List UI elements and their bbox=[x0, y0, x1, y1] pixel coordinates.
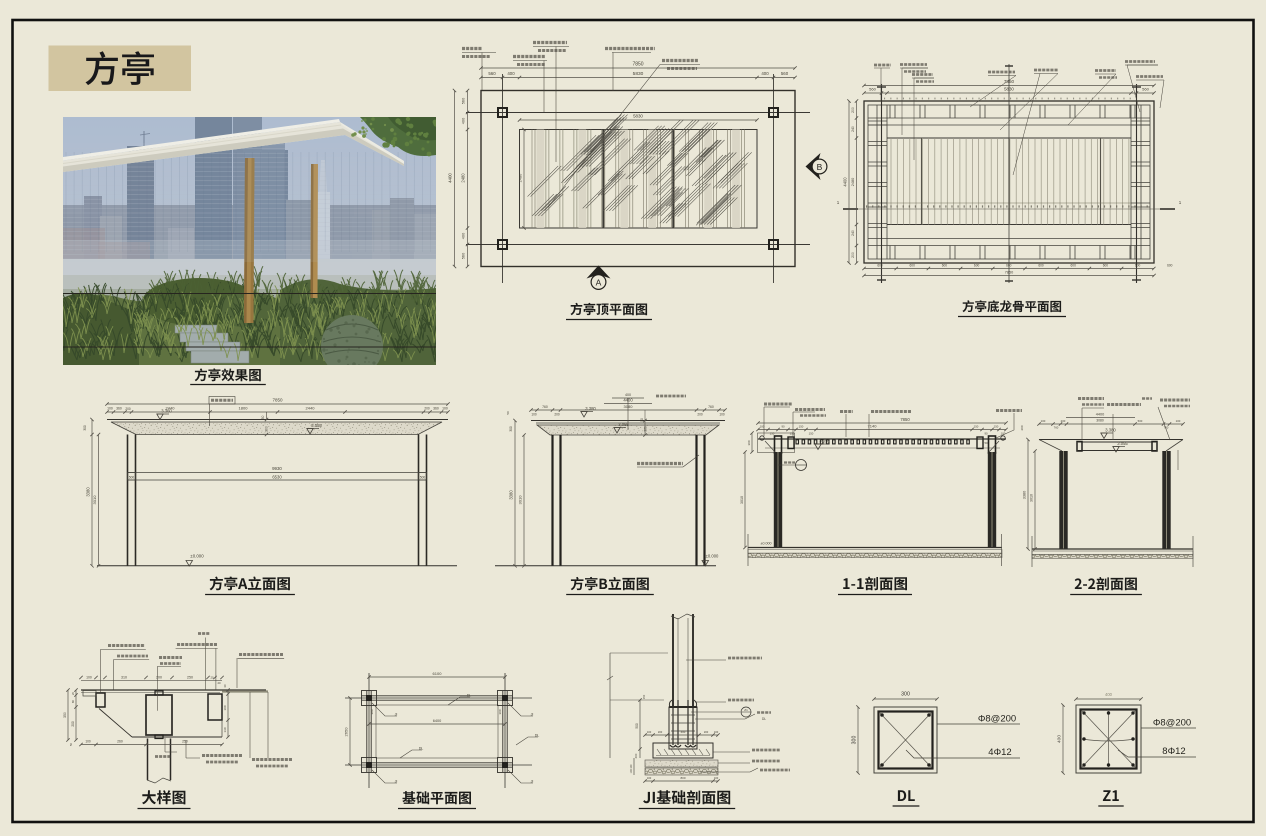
svg-text:300: 300 bbox=[265, 426, 269, 432]
svg-text:200: 200 bbox=[851, 107, 855, 113]
svg-text:200: 200 bbox=[424, 407, 430, 411]
svg-text:200: 200 bbox=[554, 413, 560, 417]
svg-text:100: 100 bbox=[719, 413, 725, 417]
svg-text:3010: 3010 bbox=[1030, 494, 1034, 502]
svg-text:100: 100 bbox=[223, 705, 227, 710]
svg-text:6530: 6530 bbox=[272, 474, 282, 479]
svg-text:3380: 3380 bbox=[1023, 491, 1027, 499]
svg-text:600: 600 bbox=[942, 264, 948, 268]
svg-text:1800: 1800 bbox=[239, 406, 249, 411]
svg-text:20: 20 bbox=[210, 675, 214, 679]
svg-text:200: 200 bbox=[156, 675, 162, 679]
svg-text:100: 100 bbox=[86, 675, 92, 679]
svg-text:400: 400 bbox=[625, 393, 631, 397]
svg-text:100: 100 bbox=[107, 407, 113, 411]
svg-text:200: 200 bbox=[704, 730, 709, 734]
svg-text:3380: 3380 bbox=[509, 490, 514, 500]
svg-text:100: 100 bbox=[714, 776, 719, 780]
svg-text:3.055: 3.055 bbox=[819, 439, 830, 444]
svg-text:50: 50 bbox=[69, 743, 73, 747]
svg-text:300: 300 bbox=[83, 425, 87, 431]
svg-text:90: 90 bbox=[781, 425, 785, 429]
svg-text:400: 400 bbox=[461, 117, 466, 124]
svg-text:±0.000: ±0.000 bbox=[190, 554, 204, 559]
svg-text:400: 400 bbox=[681, 730, 686, 734]
svg-text:560: 560 bbox=[488, 71, 496, 76]
svg-text:80: 80 bbox=[71, 700, 75, 704]
svg-text:400: 400 bbox=[1057, 735, 1063, 743]
svg-text:JI: JI bbox=[531, 713, 534, 717]
svg-text:7850: 7850 bbox=[272, 398, 283, 403]
svg-text:560: 560 bbox=[461, 97, 466, 104]
svg-text:300: 300 bbox=[852, 736, 858, 745]
svg-text:2480: 2480 bbox=[461, 173, 466, 183]
svg-text:DL: DL bbox=[467, 694, 472, 698]
svg-text:7850: 7850 bbox=[632, 62, 643, 68]
svg-text:50: 50 bbox=[261, 416, 265, 420]
svg-text:5830: 5830 bbox=[633, 114, 643, 119]
svg-text:DL: DL bbox=[762, 717, 766, 721]
svg-text:560: 560 bbox=[781, 71, 789, 76]
svg-text:JI: JI bbox=[395, 713, 398, 717]
svg-text:100: 100 bbox=[647, 730, 652, 734]
svg-text:300: 300 bbox=[509, 426, 513, 432]
svg-text:200: 200 bbox=[71, 721, 75, 727]
svg-text:250: 250 bbox=[187, 675, 193, 679]
svg-text:760: 760 bbox=[708, 405, 714, 409]
svg-text:A: A bbox=[596, 278, 602, 288]
svg-text:2440: 2440 bbox=[306, 406, 316, 411]
svg-text:9930: 9930 bbox=[272, 466, 282, 471]
svg-text:3.380: 3.380 bbox=[585, 406, 596, 411]
svg-text:2480: 2480 bbox=[851, 178, 855, 186]
svg-text:Φ8@200: Φ8@200 bbox=[978, 714, 1016, 725]
svg-text:400: 400 bbox=[461, 232, 466, 239]
svg-text:50: 50 bbox=[984, 441, 988, 445]
svg-text:3.380: 3.380 bbox=[1105, 428, 1116, 433]
svg-text:360: 360 bbox=[116, 407, 122, 411]
svg-text:100: 100 bbox=[1176, 419, 1181, 423]
svg-text:100: 100 bbox=[531, 413, 537, 417]
svg-text:260: 260 bbox=[117, 740, 123, 744]
svg-text:150: 150 bbox=[642, 694, 646, 699]
svg-text:150: 150 bbox=[809, 432, 814, 436]
svg-text:30: 30 bbox=[223, 684, 227, 688]
svg-text:760: 760 bbox=[1054, 426, 1059, 430]
svg-text:300: 300 bbox=[747, 440, 751, 445]
svg-text:4400: 4400 bbox=[1096, 413, 1104, 417]
svg-text:Z1: Z1 bbox=[744, 708, 748, 712]
svg-text:760: 760 bbox=[542, 405, 548, 409]
svg-text:560: 560 bbox=[869, 87, 876, 92]
svg-text:300: 300 bbox=[498, 709, 502, 714]
svg-text:4Φ12: 4Φ12 bbox=[988, 747, 1011, 758]
svg-text:3010: 3010 bbox=[518, 495, 523, 505]
svg-text:7850: 7850 bbox=[900, 417, 910, 422]
svg-text:600: 600 bbox=[910, 264, 916, 268]
svg-text:50: 50 bbox=[506, 411, 510, 415]
svg-text:2650: 2650 bbox=[344, 727, 349, 737]
svg-text:±0.000: ±0.000 bbox=[706, 554, 719, 559]
svg-text:5830: 5830 bbox=[633, 71, 644, 77]
svg-text:6400: 6400 bbox=[433, 719, 441, 723]
svg-text:300: 300 bbox=[370, 709, 374, 714]
svg-text:500: 500 bbox=[1138, 419, 1143, 423]
svg-text:600: 600 bbox=[1135, 264, 1141, 268]
svg-text:JI: JI bbox=[531, 780, 534, 784]
svg-text:3.055: 3.055 bbox=[618, 422, 629, 427]
svg-text:3.055: 3.055 bbox=[311, 423, 322, 428]
svg-text:90: 90 bbox=[984, 432, 988, 436]
svg-text:200: 200 bbox=[658, 730, 663, 734]
svg-text:150: 150 bbox=[770, 432, 775, 436]
svg-text:250: 250 bbox=[182, 740, 188, 744]
svg-text:4400: 4400 bbox=[843, 177, 848, 187]
svg-text:300: 300 bbox=[901, 692, 910, 698]
svg-text:100: 100 bbox=[85, 740, 91, 744]
svg-text:DL: DL bbox=[535, 734, 540, 738]
svg-text:360: 360 bbox=[433, 407, 439, 411]
svg-text:350: 350 bbox=[63, 712, 67, 718]
svg-text:50: 50 bbox=[640, 418, 644, 422]
svg-text:8Φ12: 8Φ12 bbox=[1162, 746, 1185, 757]
svg-text:240: 240 bbox=[851, 126, 855, 132]
svg-text:Φ8@200: Φ8@200 bbox=[1153, 718, 1191, 729]
svg-text:560: 560 bbox=[461, 252, 466, 259]
svg-text:600: 600 bbox=[1103, 264, 1109, 268]
svg-text:6100: 6100 bbox=[433, 671, 443, 676]
svg-text:100: 100 bbox=[647, 776, 652, 780]
svg-text:4400: 4400 bbox=[448, 173, 453, 183]
svg-text:2480: 2480 bbox=[518, 173, 523, 182]
svg-text:JI: JI bbox=[395, 780, 398, 784]
svg-text:150: 150 bbox=[994, 425, 999, 429]
svg-text:800: 800 bbox=[680, 776, 685, 780]
svg-text:200: 200 bbox=[634, 753, 638, 758]
svg-text:3010: 3010 bbox=[740, 496, 744, 504]
svg-text:200: 200 bbox=[851, 252, 855, 258]
svg-text:200: 200 bbox=[125, 407, 131, 411]
svg-text:240: 240 bbox=[851, 230, 855, 236]
svg-text:200: 200 bbox=[697, 413, 703, 417]
svg-text:560: 560 bbox=[1142, 87, 1149, 92]
svg-text:3380: 3380 bbox=[86, 487, 91, 497]
svg-text:3010: 3010 bbox=[92, 495, 97, 505]
svg-text:600: 600 bbox=[974, 264, 980, 268]
svg-text:600: 600 bbox=[877, 264, 883, 268]
svg-text:20: 20 bbox=[217, 681, 221, 685]
svg-text:3080: 3080 bbox=[624, 404, 634, 409]
svg-text:500: 500 bbox=[420, 476, 426, 480]
svg-text:100: 100 bbox=[442, 407, 448, 411]
svg-text:200: 200 bbox=[1020, 425, 1024, 430]
svg-text:B: B bbox=[817, 162, 823, 172]
svg-text:400: 400 bbox=[761, 71, 769, 76]
svg-text:100: 100 bbox=[1041, 419, 1046, 423]
svg-text:150: 150 bbox=[790, 432, 795, 436]
svg-text:3080: 3080 bbox=[1096, 419, 1104, 423]
svg-text:400: 400 bbox=[507, 71, 515, 76]
svg-text:310: 310 bbox=[121, 675, 127, 679]
svg-text:100 100: 100 100 bbox=[630, 764, 633, 773]
svg-text:300: 300 bbox=[644, 426, 648, 432]
svg-text:500: 500 bbox=[635, 723, 639, 729]
svg-text:130: 130 bbox=[223, 727, 227, 732]
svg-text:150: 150 bbox=[974, 425, 979, 429]
svg-text:3.055: 3.055 bbox=[1117, 441, 1128, 446]
svg-text:DL: DL bbox=[419, 747, 424, 751]
svg-text:600: 600 bbox=[1071, 264, 1077, 268]
svg-text:600: 600 bbox=[1038, 264, 1044, 268]
svg-text:100: 100 bbox=[714, 730, 719, 734]
svg-text:4400: 4400 bbox=[623, 398, 633, 403]
svg-text:500: 500 bbox=[129, 476, 135, 480]
svg-text:±0.000: ±0.000 bbox=[761, 542, 772, 546]
svg-text:150: 150 bbox=[799, 425, 804, 429]
svg-text:200: 200 bbox=[1061, 419, 1066, 423]
svg-text:3.360: 3.360 bbox=[161, 409, 172, 414]
svg-text:400: 400 bbox=[1105, 692, 1113, 697]
svg-text:600: 600 bbox=[1167, 264, 1173, 268]
